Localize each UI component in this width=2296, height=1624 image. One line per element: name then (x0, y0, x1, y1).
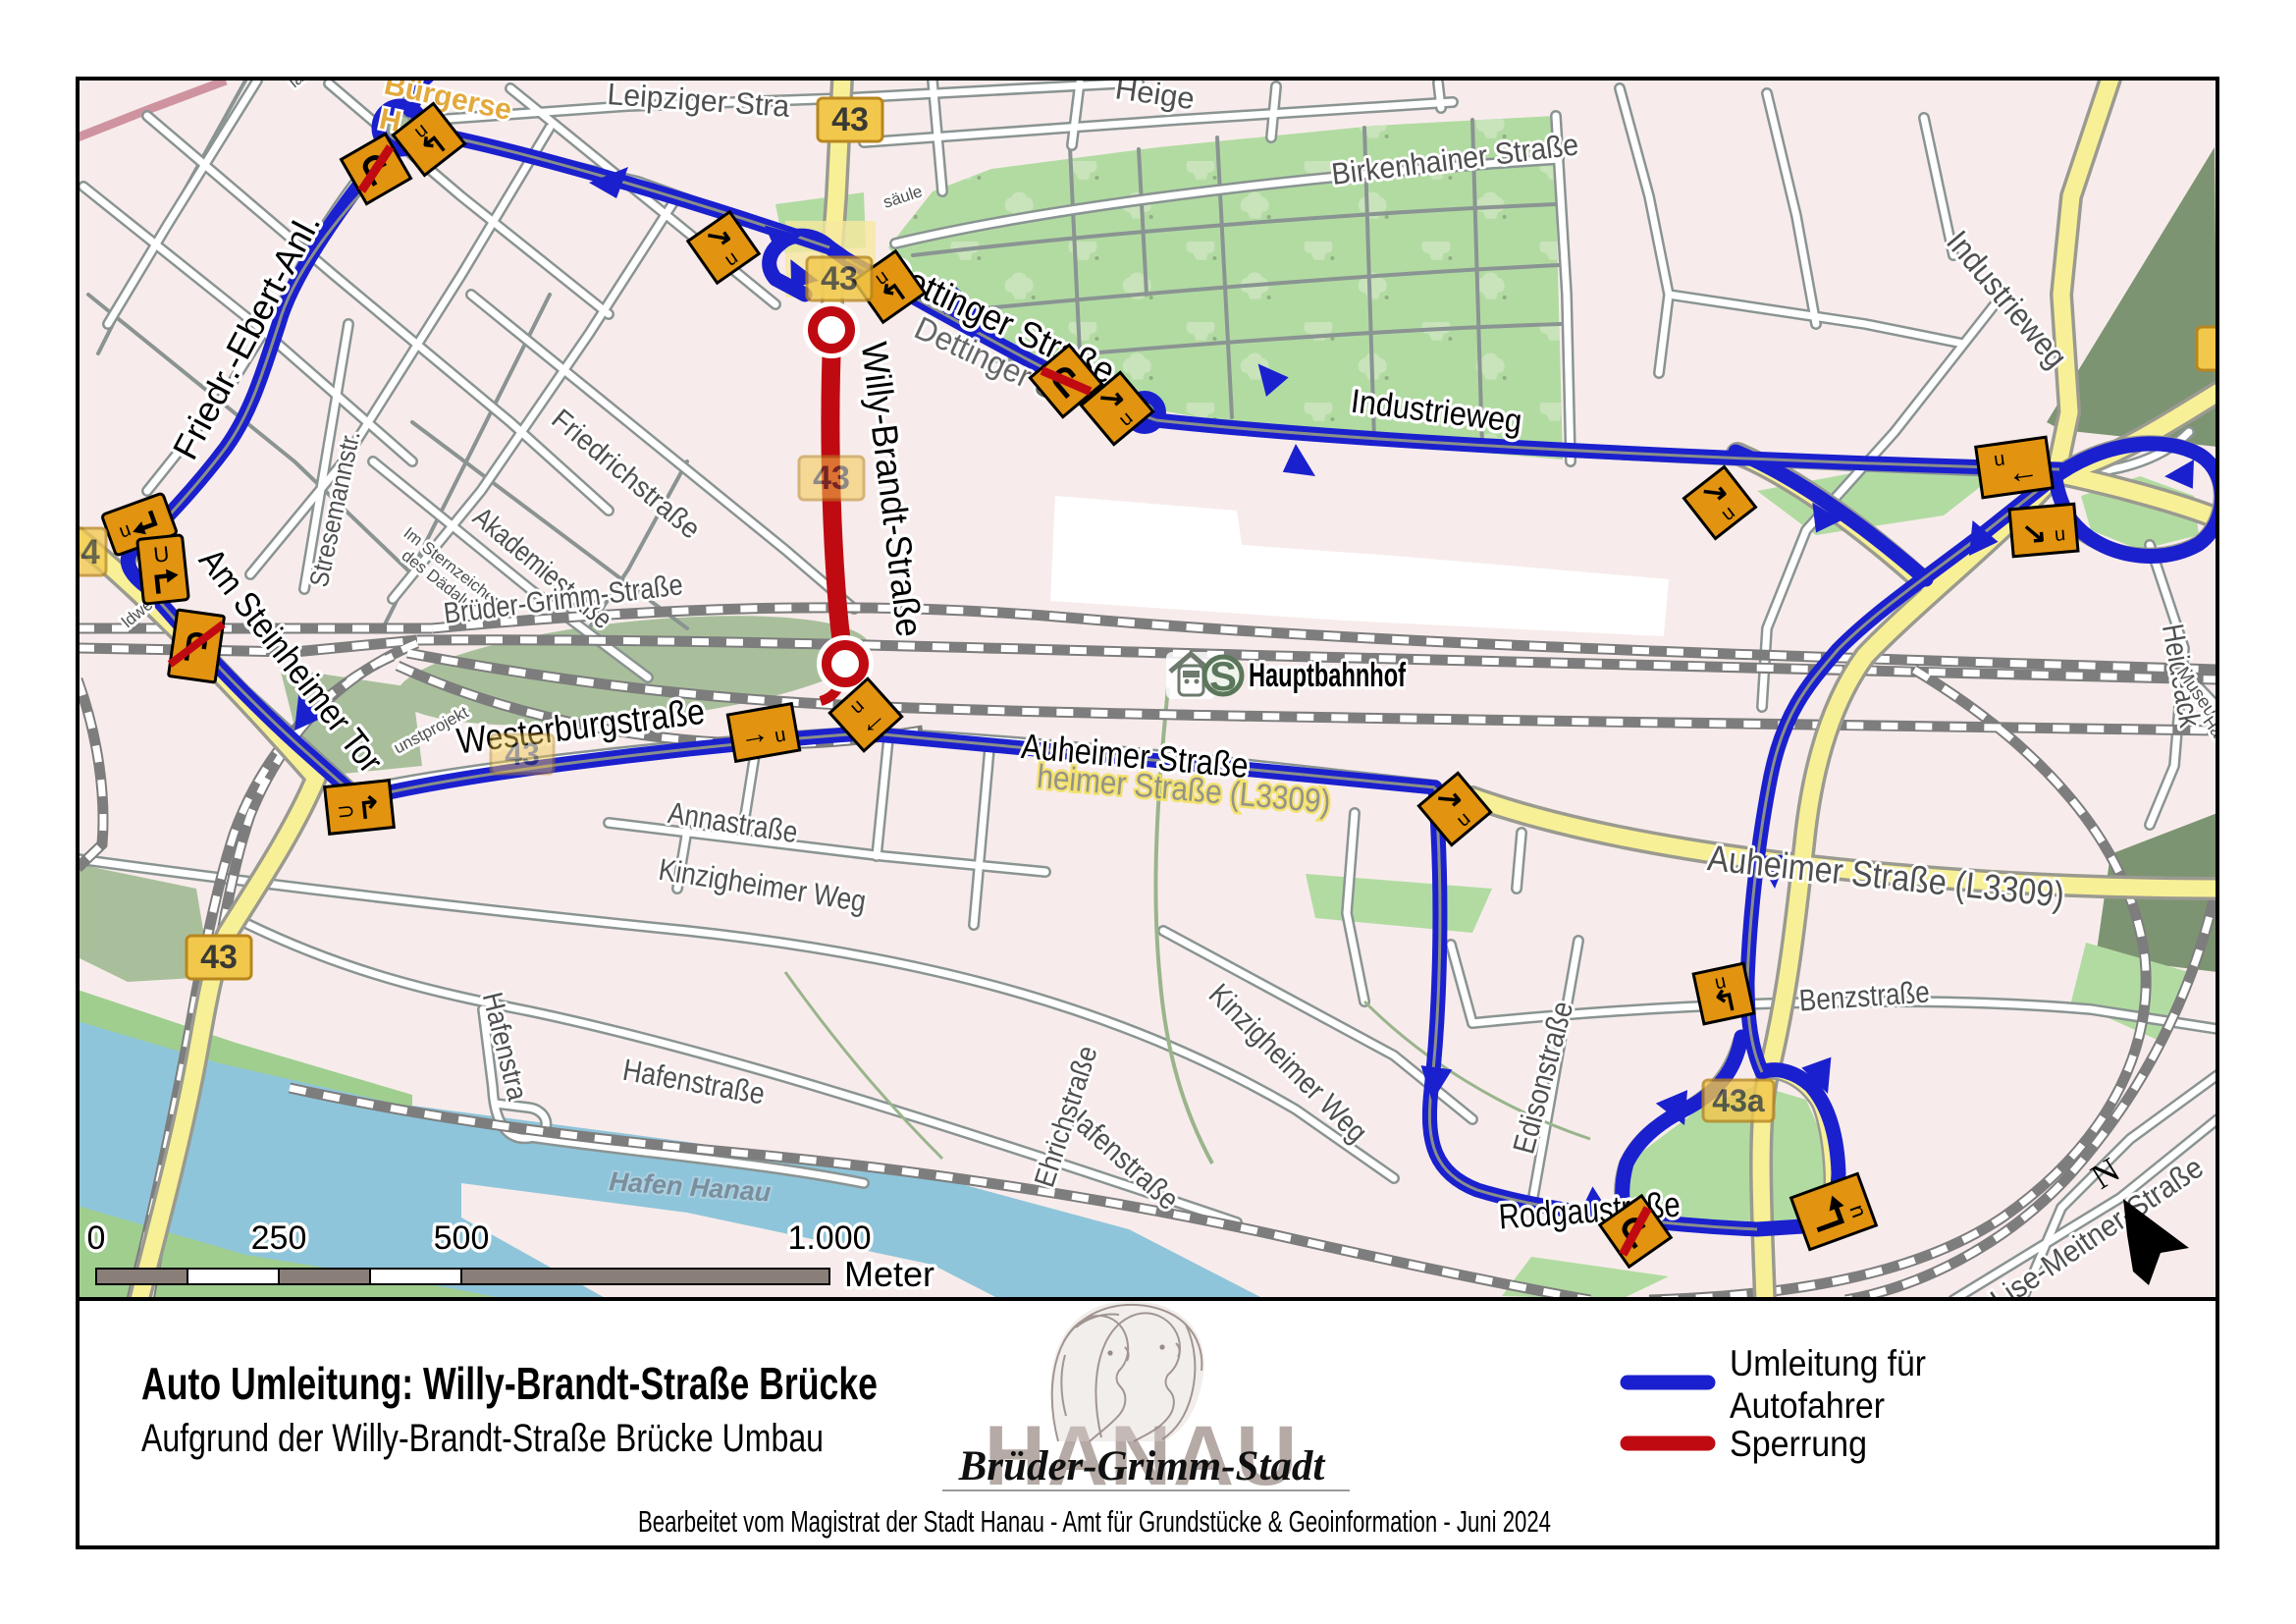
svg-text:Hauptbahnhof: Hauptbahnhof (1249, 657, 1406, 694)
svg-text:←: ← (2004, 452, 2041, 491)
svg-text:0: 0 (87, 1219, 106, 1257)
svg-text:S: S (1209, 653, 1237, 699)
svg-text:Brüder-Grimm-Stadt: Brüder-Grimm-Stadt (958, 1443, 1327, 1489)
svg-text:Meter: Meter (844, 1254, 934, 1294)
svg-text:43: 43 (813, 460, 850, 497)
svg-text:U: U (152, 541, 170, 568)
svg-text:Umleitung für: Umleitung für (1730, 1343, 1926, 1383)
svg-text:⊃: ⊃ (336, 798, 356, 825)
svg-text:Auto Umleitung: Willy-Brandt-S: Auto Umleitung: Willy-Brandt-Straße Brüc… (141, 1358, 878, 1409)
svg-text:↘: ↘ (2020, 516, 2048, 551)
svg-text:Sperrung: Sperrung (1730, 1424, 1867, 1464)
svg-text:Autofahrer: Autofahrer (1730, 1385, 1885, 1426)
svg-text:43a: 43a (1712, 1083, 1765, 1118)
svg-text:43: 43 (821, 260, 858, 298)
svg-text:43: 43 (505, 736, 540, 772)
svg-text:500: 500 (434, 1219, 490, 1257)
svg-text:↱: ↱ (355, 791, 383, 826)
svg-text:→: → (737, 716, 772, 753)
svg-text:4: 4 (80, 533, 100, 571)
svg-text:250: 250 (251, 1219, 307, 1257)
svg-text:43: 43 (200, 939, 238, 976)
svg-text:Bearbeitet vom Magistrat der S: Bearbeitet vom Magistrat der Stadt Hanau… (638, 1504, 1551, 1539)
svg-text:1.000: 1.000 (787, 1219, 871, 1257)
svg-text:Aufgrund der Willy-Brandt-Stra: Aufgrund der Willy-Brandt-Straße Brücke … (141, 1417, 824, 1460)
svg-text:u: u (2054, 523, 2066, 546)
svg-text:43: 43 (831, 101, 869, 138)
